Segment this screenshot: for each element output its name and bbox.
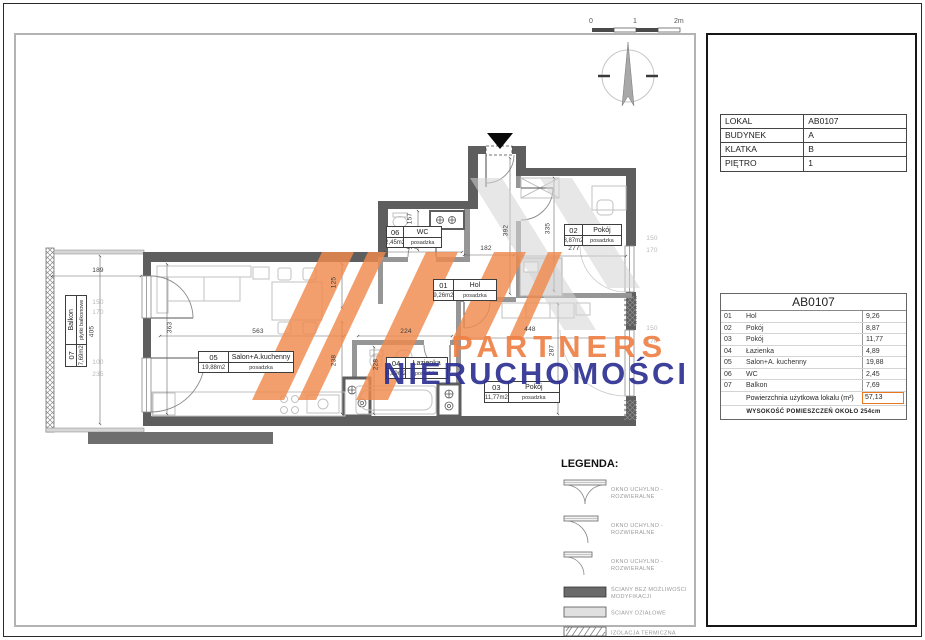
scale-label-0: 0 xyxy=(589,18,593,25)
total-area-row: Powierzchnia użytkowa lokalu (m²) 57,13 xyxy=(721,392,906,406)
row-area: 4,89 xyxy=(862,346,906,357)
room-tag-hol: 01 Hol 9,26m2 posadzka xyxy=(433,279,497,301)
info-value: A xyxy=(804,129,906,142)
dimension-label: 100 xyxy=(86,358,110,367)
room-area: 19,88m2 xyxy=(199,363,229,372)
info-value: B xyxy=(804,143,906,156)
legend-label: ŚCIANY BEZ MOŻLIWOŚCI MODYFIKACJI xyxy=(611,587,693,601)
floor-plan-sheet: 0 1 2m 189 150 170 405 100 235 363 563 1… xyxy=(0,0,925,640)
room-name: WC xyxy=(404,227,441,238)
total-area-label: Powierzchnia użytkowa lokalu (m²) xyxy=(743,395,862,402)
dimension-label: 392 xyxy=(502,219,511,243)
dimension-label: 189 xyxy=(86,266,110,275)
room-floor-finish: posadzka xyxy=(454,291,496,300)
row-number: 04 xyxy=(721,346,743,357)
room-area: 11,77m2 xyxy=(485,393,509,402)
row-area: 7,69 xyxy=(862,380,906,391)
room-number: 02 xyxy=(565,225,583,236)
legend: LEGENDA: OKNO UCHYLNO - ROZWIERALNE OKNO… xyxy=(561,458,695,640)
partition-wall-swatch-icon xyxy=(563,606,609,618)
room-floor-finish: posadzka xyxy=(509,393,559,402)
ceiling-height-note: WYSOKOŚĆ POMIESZCZEŃ OKOŁO 254cm xyxy=(721,406,906,419)
dimension-label: 182 xyxy=(474,244,498,253)
table-row: PIĘTRO 1 xyxy=(721,157,906,171)
window-symbol-icon xyxy=(563,550,609,578)
room-name: Salon+A.kuchenny xyxy=(229,352,293,363)
room-area: 2,45m2 xyxy=(387,238,404,247)
legend-item-window: OKNO UCHYLNO - ROZWIERALNE xyxy=(561,512,695,548)
room-number: 01 xyxy=(434,280,454,291)
row-name: WC xyxy=(743,369,862,380)
watermark-nieruchomosci: NIERUCHOMOŚCI xyxy=(383,356,689,392)
row-name: Hol xyxy=(743,311,862,322)
row-number: 06 xyxy=(721,369,743,380)
legend-label: ŚCIANY DZIAŁOWE xyxy=(611,611,693,618)
unit-info-table: LOKAL AB0107 BUDYNEK A KLATKA B PIĘTRO 1 xyxy=(720,114,907,172)
room-number: 06 xyxy=(387,227,404,238)
insulation-swatch-icon xyxy=(563,626,609,638)
dimension-label: 224 xyxy=(394,327,418,336)
legend-item-partition-walls: ŚCIANY DZIAŁOWE xyxy=(561,604,695,624)
table-row: 05 Salon+A. kuchenny 19,88 xyxy=(721,357,906,369)
legend-label: OKNO UCHYLNO - ROZWIERALNE xyxy=(611,487,693,501)
row-area: 9,26 xyxy=(862,311,906,322)
room-name: Pokój xyxy=(583,225,621,236)
row-area: 2,45 xyxy=(862,369,906,380)
dimension-label: 405 xyxy=(88,320,97,344)
table-row: 02 Pokój 8,87 xyxy=(721,323,906,335)
dimension-label: 125 xyxy=(330,271,339,295)
room-name: Hol xyxy=(454,280,496,291)
room-area: 7,69m2 xyxy=(77,344,86,366)
row-area: 19,88 xyxy=(862,357,906,368)
row-number: 05 xyxy=(721,357,743,368)
row-name: Balkon xyxy=(743,380,862,391)
table-row: 01 Hol 9,26 xyxy=(721,311,906,323)
row-name: Łazienka xyxy=(743,346,862,357)
info-key: BUDYNEK xyxy=(721,129,804,142)
legend-label: IZOLACJA TERMICZNA xyxy=(611,631,693,638)
legend-item-window: OKNO UCHYLNO - ROZWIERALNE xyxy=(561,548,695,584)
total-area-value: 57,13 xyxy=(862,392,904,404)
dimension-label: 150 xyxy=(640,234,664,243)
info-key: PIĘTRO xyxy=(721,157,804,171)
dimension-label: 170 xyxy=(86,308,110,317)
room-tag-salon: 05 Salon+A.kuchenny 19,88m2 posadzka xyxy=(198,351,294,373)
room-floor-finish: płytki balkonowe xyxy=(77,296,86,344)
room-number: 07 xyxy=(66,344,77,366)
row-area: 11,77 xyxy=(862,334,906,345)
unit-id-title: AB0107 xyxy=(721,294,906,311)
info-key: KLATKA xyxy=(721,143,804,156)
info-value: 1 xyxy=(804,157,906,171)
room-floor-finish: posadzka xyxy=(583,236,621,245)
room-floor-finish: posadzka xyxy=(229,363,293,372)
info-value: AB0107 xyxy=(804,115,906,128)
info-panel: LOKAL AB0107 BUDYNEK A KLATKA B PIĘTRO 1… xyxy=(706,33,917,627)
row-number: 03 xyxy=(721,334,743,345)
room-number: 05 xyxy=(199,352,229,363)
table-row: 06 WC 2,45 xyxy=(721,369,906,381)
dimension-label: 170 xyxy=(640,246,664,255)
table-row: 04 Łazienka 4,89 xyxy=(721,346,906,358)
legend-label: OKNO UCHYLNO - ROZWIERALNE xyxy=(611,559,693,573)
room-tag-pokoj-02: 02 Pokój 8,87m2 posadzka xyxy=(564,224,622,246)
legend-item-structural-walls: ŚCIANY BEZ MOŻLIWOŚCI MODYFIKACJI xyxy=(561,584,695,604)
window-symbol-icon xyxy=(563,478,609,508)
legend-item-insulation: IZOLACJA TERMICZNA xyxy=(561,624,695,640)
legend-item-window: OKNO UCHYLNO - ROZWIERALNE xyxy=(561,476,695,512)
table-row: BUDYNEK A xyxy=(721,129,906,143)
scale-bar xyxy=(592,28,680,32)
dimension-label: 150 xyxy=(86,298,110,307)
info-key: LOKAL xyxy=(721,115,804,128)
table-row: 03 Pokój 11,77 xyxy=(721,334,906,346)
room-area-table: AB0107 01 Hol 9,26 02 Pokój 8,87 03 Pokó… xyxy=(720,293,907,420)
table-row: 07 Balkon 7,69 xyxy=(721,380,906,392)
scale-label-2m: 2m xyxy=(674,18,684,25)
dimension-label: 238 xyxy=(330,349,339,373)
room-name: Balkon xyxy=(66,296,77,344)
room-tag-wc: 06 WC 2,45m2 posadzka xyxy=(386,226,442,248)
row-number: 07 xyxy=(721,380,743,391)
row-name: Salon+A. kuchenny xyxy=(743,357,862,368)
legend-label: OKNO UCHYLNO - ROZWIERALNE xyxy=(611,523,693,537)
scale-label-1: 1 xyxy=(633,18,637,25)
dimension-label: 335 xyxy=(544,217,553,241)
legend-title: LEGENDA: xyxy=(561,458,695,470)
row-area: 8,87 xyxy=(862,323,906,334)
row-name: Pokój xyxy=(743,334,862,345)
solid-wall-swatch-icon xyxy=(563,586,609,598)
row-number: 01 xyxy=(721,311,743,322)
dimension-label: 563 xyxy=(246,327,270,336)
row-number: 02 xyxy=(721,323,743,334)
dimension-label: 235 xyxy=(86,370,110,379)
room-floor-finish: posadzka xyxy=(404,238,441,247)
dimension-label: 228 xyxy=(372,353,381,377)
window-symbol-icon xyxy=(563,514,609,546)
row-name: Pokój xyxy=(743,323,862,334)
table-row: KLATKA B xyxy=(721,143,906,157)
dimension-label: 363 xyxy=(166,316,175,340)
room-area: 9,26m2 xyxy=(434,291,454,300)
room-tag-balkon: 07 Balkon 7,69m2 płytki balkonowe xyxy=(65,295,87,367)
room-area: 8,87m2 xyxy=(565,236,583,245)
table-row: LOKAL AB0107 xyxy=(721,115,906,129)
